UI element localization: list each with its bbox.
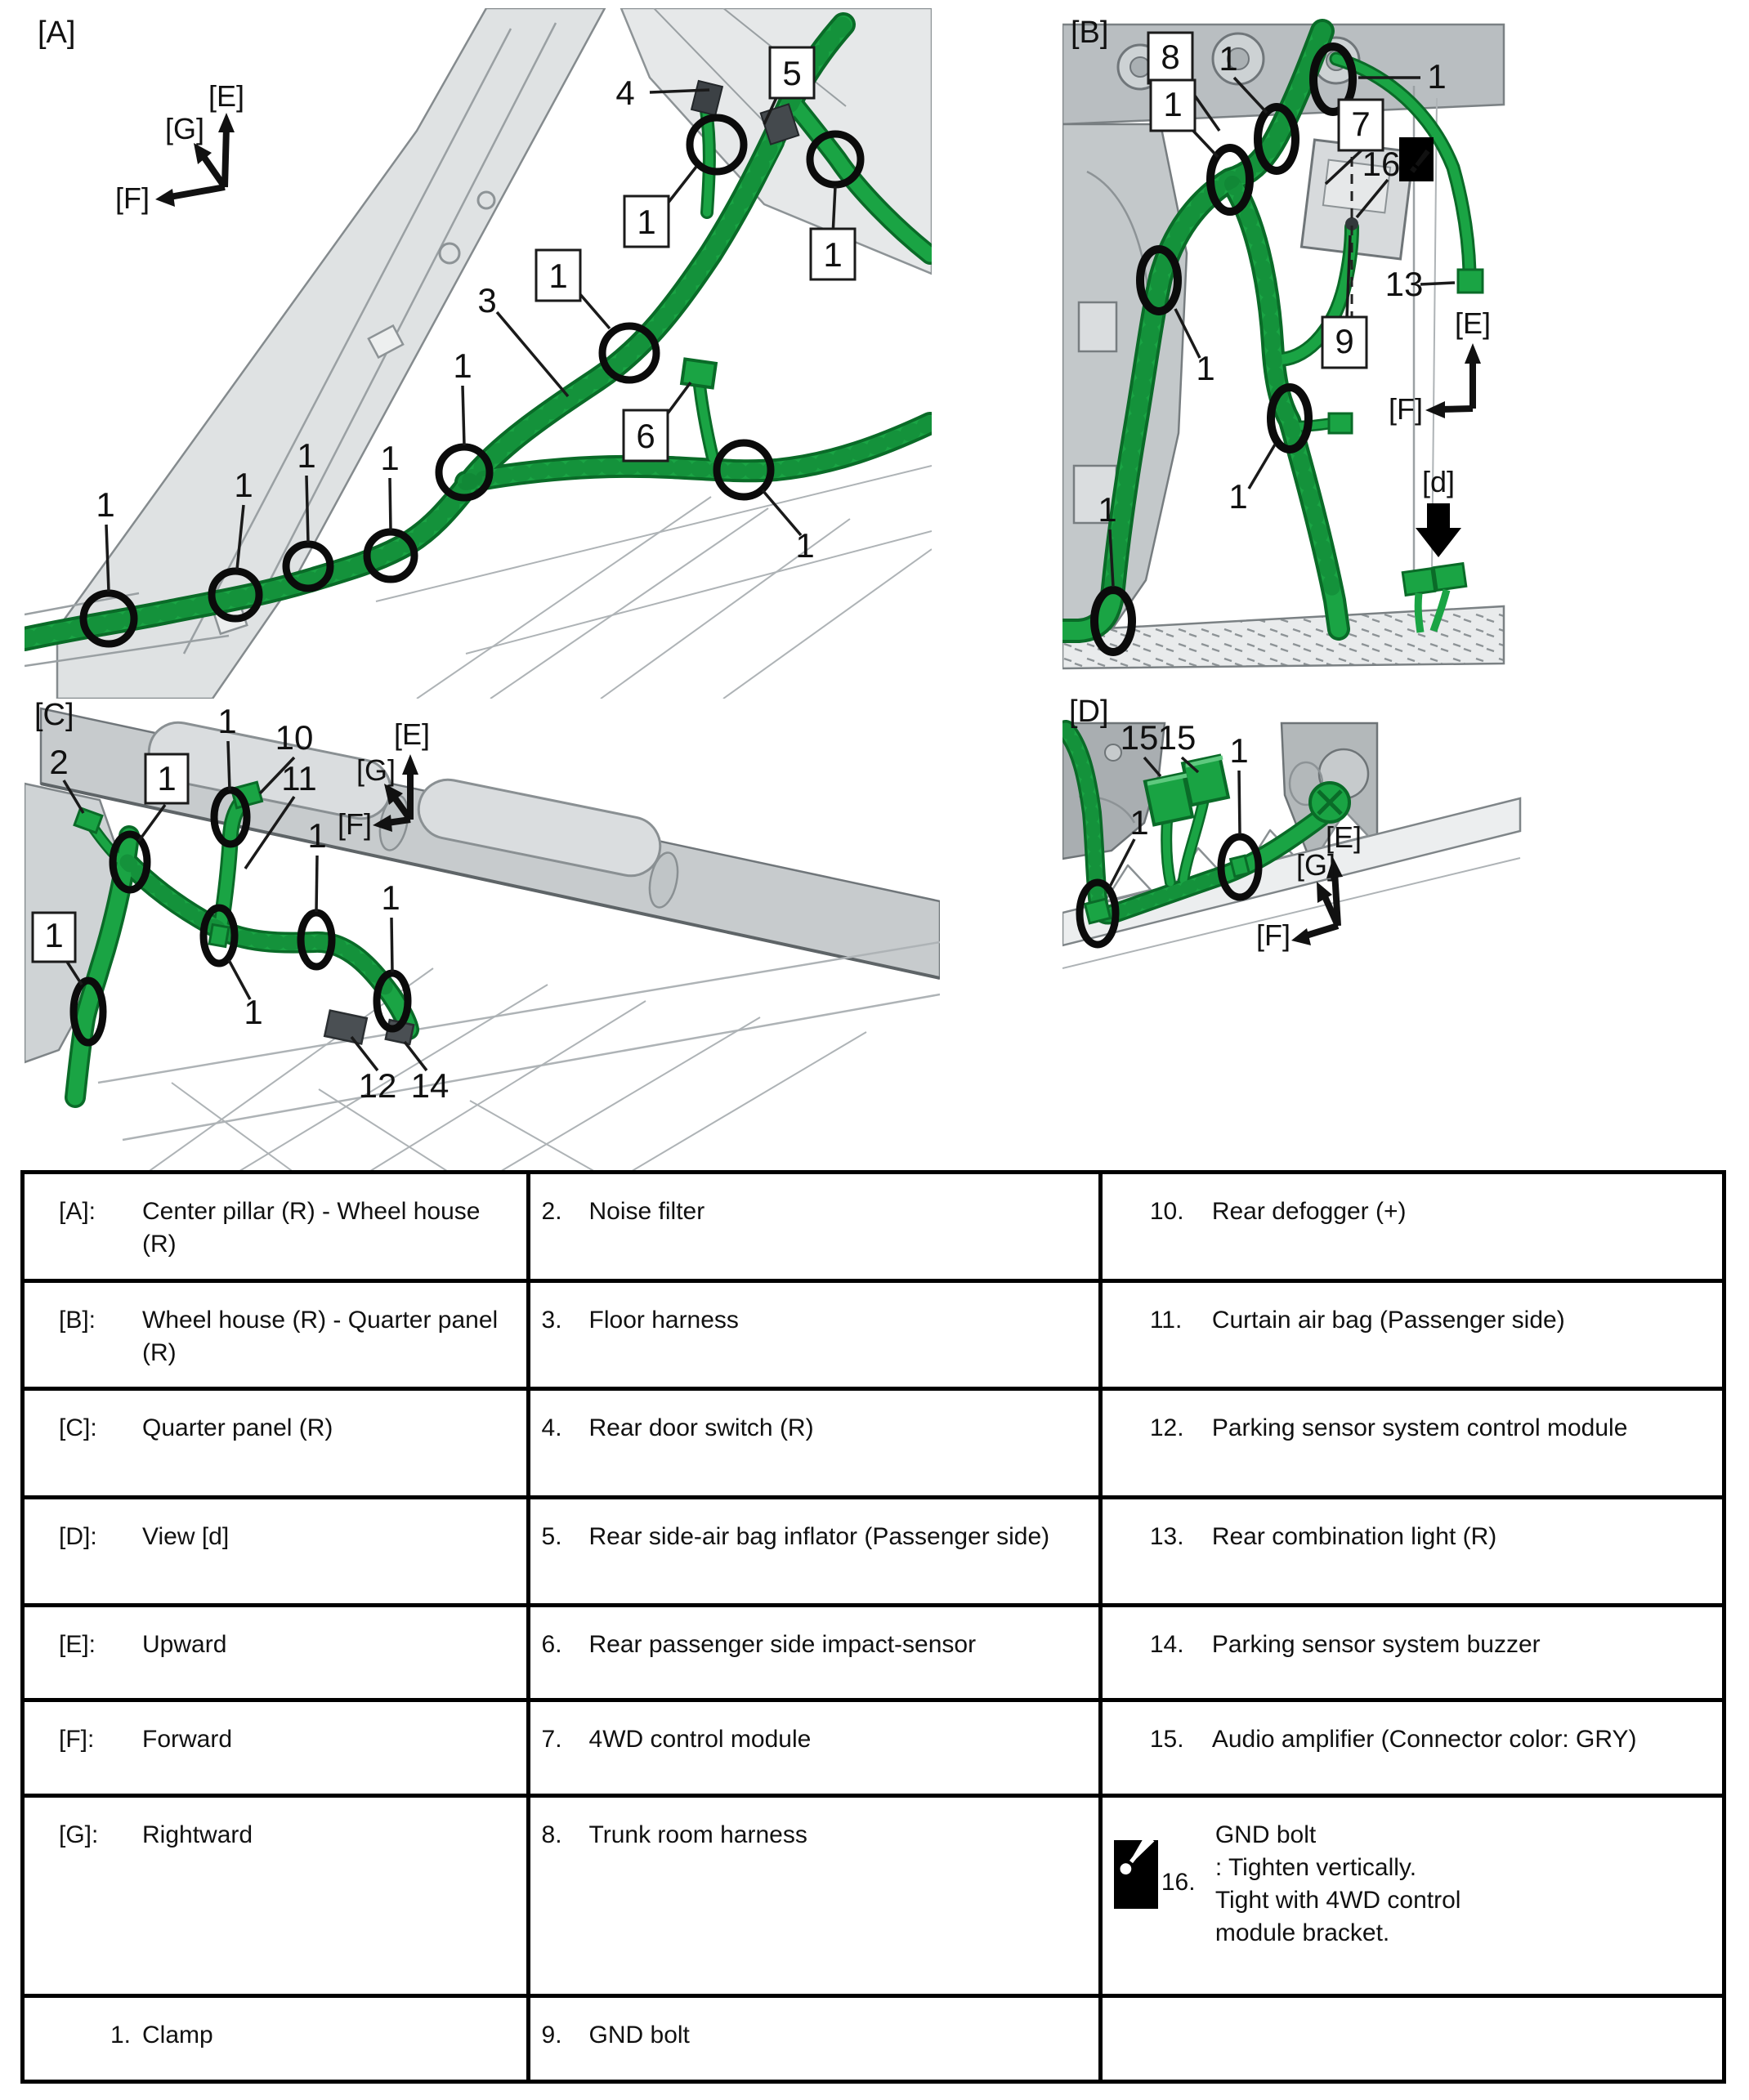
legend-num: 6. bbox=[542, 1629, 575, 1661]
legend-value: Rear side-air bag inflator (Passenger si… bbox=[589, 1521, 1050, 1553]
legend-key: [F]: bbox=[59, 1723, 131, 1756]
callout-8: 8 bbox=[1161, 38, 1179, 76]
legend-value: Rightward bbox=[142, 1819, 253, 1852]
callout-15: 15 bbox=[1121, 718, 1159, 757]
legend-value: Clamp bbox=[142, 2019, 213, 2052]
axis-label-e: [E] bbox=[208, 79, 244, 113]
axis-label-g: [G] bbox=[1296, 848, 1335, 882]
legend-row: [E]:Upward 6.Rear passenger side impact-… bbox=[25, 1607, 1722, 1702]
legend-num: 5. bbox=[542, 1521, 575, 1553]
legend-num: 7. bbox=[542, 1723, 575, 1756]
legend-row: [D]:View [d] 5.Rear side-air bag inflato… bbox=[25, 1499, 1722, 1607]
legend-value: 4WD control module bbox=[589, 1723, 812, 1756]
callout-15: 15 bbox=[1158, 718, 1197, 757]
callout-1: 1 bbox=[96, 485, 114, 524]
legend-num: 8. bbox=[542, 1819, 575, 1852]
legend-key: [C]: bbox=[59, 1412, 131, 1445]
diagram-panel-c: [C] 2 1 1 10 11 1 1 1 1 12 14 [E] [G] [F… bbox=[25, 699, 940, 1173]
legend-value: Rear combination light (R) bbox=[1212, 1521, 1496, 1553]
legend-key: [B]: bbox=[59, 1304, 131, 1337]
legend-table: [A]:Center pillar (R) - Wheel house (R) … bbox=[20, 1170, 1726, 2084]
callout-6: 6 bbox=[636, 417, 655, 455]
diagram-panel-a: [A] 4 5 1 3 6 1 1 1 1 1 1 1 1 [E] [G] [F… bbox=[25, 8, 932, 699]
callout-1: 1 bbox=[1129, 803, 1148, 842]
legend-value: Forward bbox=[142, 1723, 232, 1756]
callout-1: 1 bbox=[1427, 57, 1446, 96]
view-d-label: [d] bbox=[1422, 465, 1455, 498]
callout-5: 5 bbox=[782, 54, 801, 92]
callout-7: 7 bbox=[1351, 105, 1370, 143]
callout-1: 1 bbox=[381, 878, 400, 917]
legend-value: Curtain air bag (Passenger side) bbox=[1212, 1304, 1565, 1337]
callout-1: 1 bbox=[1229, 731, 1248, 770]
callout-16: 16 bbox=[1362, 145, 1401, 183]
callout-1: 1 bbox=[234, 466, 253, 504]
rear-combination-light-connector bbox=[1458, 270, 1483, 293]
legend-key: 1. bbox=[59, 2019, 131, 2052]
axis-label-e: [E] bbox=[394, 717, 430, 751]
panel-b-tag: [B] bbox=[1071, 16, 1108, 50]
callout-1: 1 bbox=[44, 916, 63, 954]
callout-1: 1 bbox=[795, 526, 814, 565]
legend-num: 3. bbox=[542, 1304, 575, 1337]
callout-1: 1 bbox=[823, 235, 842, 274]
callout-11: 11 bbox=[281, 759, 317, 798]
legend-key: [A]: bbox=[59, 1195, 131, 1228]
legend-num: 15. bbox=[1150, 1723, 1204, 1756]
legend-num: 16. bbox=[1161, 1866, 1196, 1899]
callout-4: 4 bbox=[615, 74, 634, 112]
diagram-panel-d: [D] 15 15 1 1 [E] [G] [F] bbox=[1062, 699, 1749, 1013]
legend-num: 12. bbox=[1150, 1412, 1204, 1445]
tighten-vertically-icon: ! bbox=[1114, 1840, 1158, 1909]
legend-value: Floor harness bbox=[589, 1304, 739, 1337]
callout-9: 9 bbox=[1335, 322, 1353, 360]
callout-2: 2 bbox=[49, 743, 68, 781]
legend-num: 11. bbox=[1150, 1304, 1204, 1337]
legend-value: Rear passenger side impact-sensor bbox=[589, 1629, 977, 1661]
legend-value: Noise filter bbox=[589, 1195, 705, 1228]
legend-num: 13. bbox=[1150, 1521, 1204, 1553]
panel-c-tag: [C] bbox=[34, 699, 74, 732]
axis-label-f: [F] bbox=[115, 181, 150, 215]
callout-1: 1 bbox=[217, 702, 236, 740]
axis-label-f: [F] bbox=[1256, 918, 1291, 952]
legend-row: [C]:Quarter panel (R) 4.Rear door switch… bbox=[25, 1391, 1722, 1499]
legend-value: Audio amplifier (Connector color: GRY) bbox=[1212, 1723, 1637, 1756]
grommet-clamp bbox=[209, 924, 229, 946]
axis-label-g: [G] bbox=[356, 753, 396, 787]
callout-1: 1 bbox=[1196, 349, 1214, 387]
legend-value: Trunk room harness bbox=[589, 1819, 807, 1852]
callout-1: 1 bbox=[453, 346, 472, 385]
legend-num: 14. bbox=[1150, 1629, 1204, 1661]
legend-row: [B]:Wheel house (R) - Quarter panel (R) … bbox=[25, 1283, 1722, 1391]
callout-3: 3 bbox=[477, 281, 496, 319]
callout-1: 1 bbox=[548, 257, 567, 295]
service-manual-page: [A] 4 5 1 3 6 1 1 1 1 1 1 1 1 [E] [G] [F… bbox=[0, 0, 1749, 2100]
callout-1: 1 bbox=[1228, 477, 1247, 516]
legend-row: [G]:Rightward 8.Trunk room harness ! 16.… bbox=[25, 1798, 1722, 1998]
legend-value: View [d] bbox=[142, 1521, 229, 1553]
legend-value: GND bolt bbox=[589, 2019, 690, 2052]
legend-num: 4. bbox=[542, 1412, 575, 1445]
callout-12: 12 bbox=[359, 1066, 397, 1105]
legend-value: Upward bbox=[142, 1629, 226, 1661]
legend-num: 2. bbox=[542, 1195, 575, 1228]
callout-1: 1 bbox=[380, 439, 399, 477]
callout-10: 10 bbox=[275, 718, 314, 757]
legend-value: GND bolt : Tighten vertically. Tight wit… bbox=[1215, 1819, 1461, 1950]
legend-row: [F]:Forward 7.4WD control module 15.Audi… bbox=[25, 1702, 1722, 1798]
legend-key: [G]: bbox=[59, 1819, 131, 1852]
legend-value: Wheel house (R) - Quarter panel (R) bbox=[142, 1304, 502, 1369]
callout-1: 1 bbox=[157, 759, 176, 798]
callout-13: 13 bbox=[1385, 265, 1424, 303]
sill-clamp bbox=[1231, 856, 1250, 877]
callout-14: 14 bbox=[411, 1066, 450, 1105]
axis-label-f: [F] bbox=[1389, 392, 1423, 426]
axis-label-g: [G] bbox=[165, 112, 204, 145]
panel-d-tag: [D] bbox=[1069, 699, 1109, 729]
legend-row: [A]:Center pillar (R) - Wheel house (R) … bbox=[25, 1174, 1722, 1283]
parking-sensor-module bbox=[324, 1011, 367, 1044]
legend-value: Rear defogger (+) bbox=[1212, 1195, 1407, 1228]
legend-num: 10. bbox=[1150, 1195, 1204, 1228]
legend-row: 1.Clamp 9.GND bolt bbox=[25, 1998, 1722, 2080]
legend-value: Center pillar (R) - Wheel house (R) bbox=[142, 1195, 502, 1261]
callout-1: 1 bbox=[297, 436, 315, 475]
legend-key: [D]: bbox=[59, 1521, 131, 1553]
gnd-terminal-9 bbox=[1329, 413, 1352, 433]
legend-num: 9. bbox=[542, 2019, 575, 2052]
callout-1: 1 bbox=[1098, 490, 1116, 529]
legend-value: Parking sensor system control module bbox=[1212, 1412, 1628, 1445]
callout-1: 1 bbox=[1219, 39, 1237, 78]
legend-value: Quarter panel (R) bbox=[142, 1412, 333, 1445]
impact-sensor-connector bbox=[682, 360, 716, 388]
legend-value: Parking sensor system buzzer bbox=[1212, 1629, 1541, 1661]
callout-1: 1 bbox=[307, 816, 326, 855]
axis-label-f: [F] bbox=[338, 807, 372, 841]
axis-label-e: [E] bbox=[1455, 306, 1491, 340]
panel-a-tag: [A] bbox=[38, 16, 75, 50]
diagram-panel-b: ! [B] 8 1 1 1 7 16 13 9 1 1 1 [E] [F] [d… bbox=[1062, 8, 1749, 699]
callout-1: 1 bbox=[244, 993, 262, 1031]
corner-connector bbox=[1085, 899, 1110, 923]
callout-1: 1 bbox=[1163, 85, 1182, 123]
legend-key: [E]: bbox=[59, 1629, 131, 1661]
legend-value: Rear door switch (R) bbox=[589, 1412, 814, 1445]
callout-1: 1 bbox=[637, 203, 655, 241]
view-d-arrow bbox=[1416, 503, 1461, 557]
